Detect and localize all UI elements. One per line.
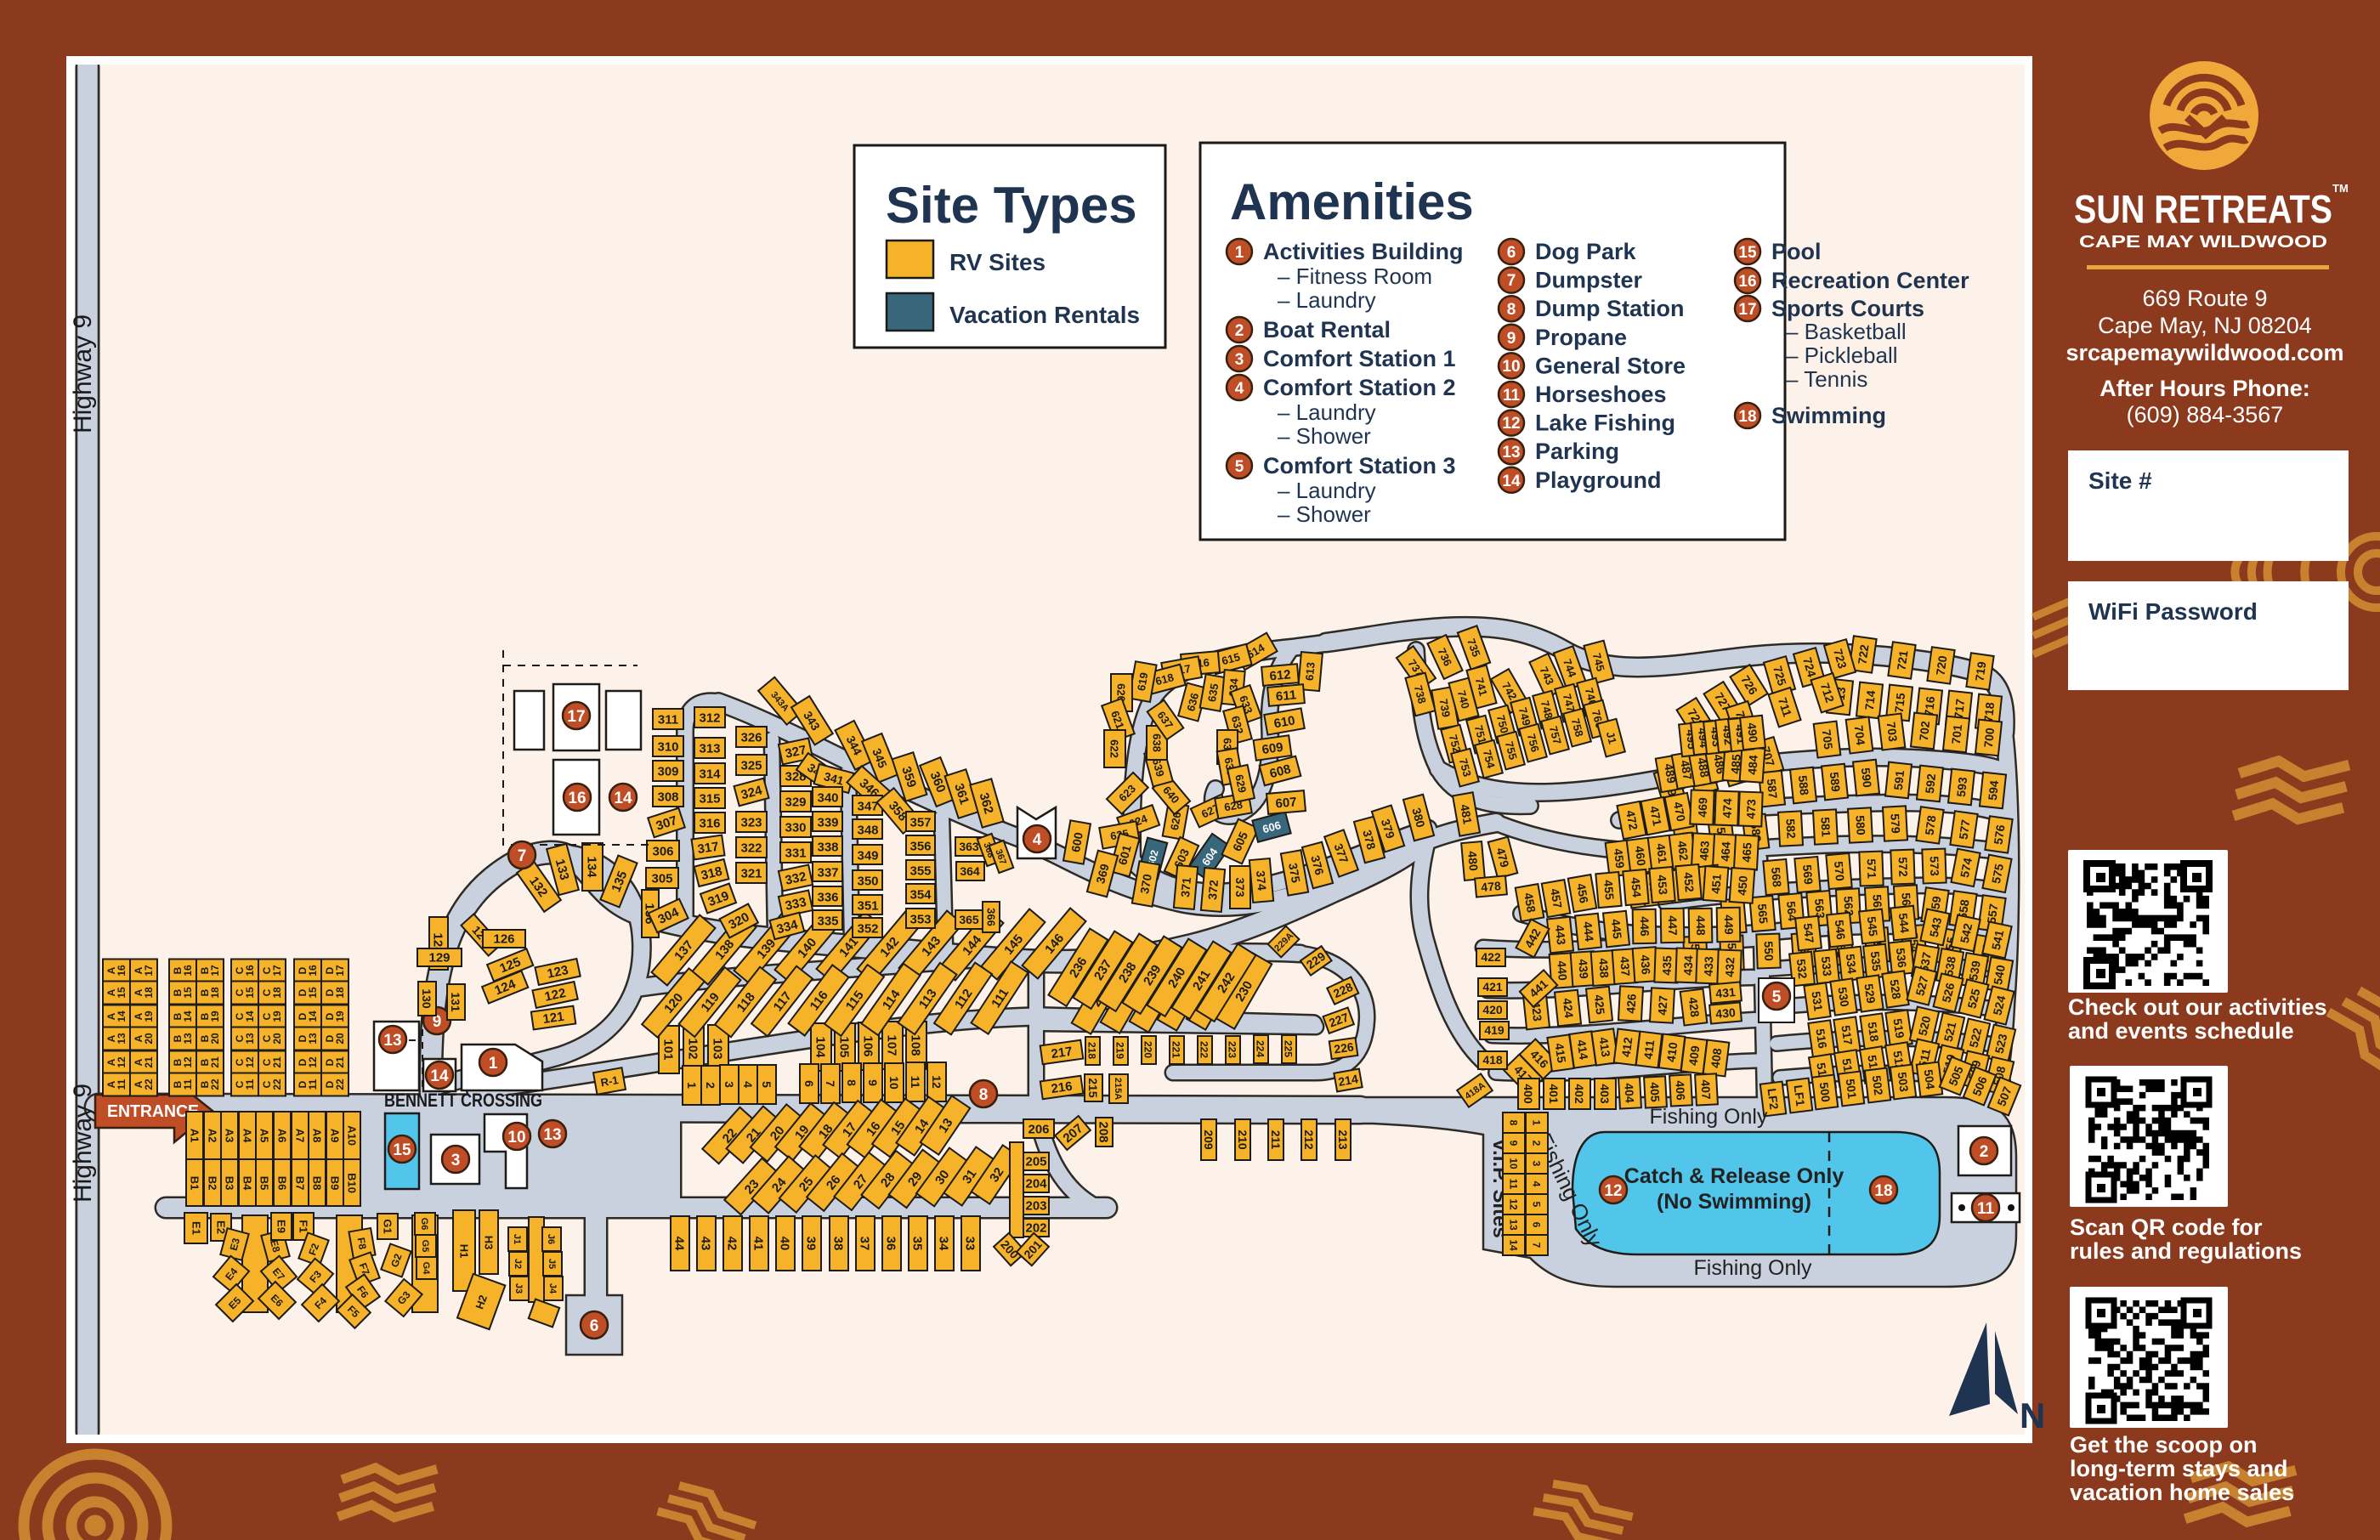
svg-text:572: 572 <box>1896 857 1911 877</box>
svg-text:B1: B1 <box>188 1176 201 1191</box>
svg-text:11: 11 <box>182 1079 194 1090</box>
svg-text:306: 306 <box>652 844 673 858</box>
svg-text:314: 314 <box>699 767 721 781</box>
svg-text:427: 427 <box>1655 995 1669 1016</box>
svg-text:204: 204 <box>1025 1176 1047 1191</box>
svg-text:365: 365 <box>959 913 979 926</box>
svg-text:224: 224 <box>1255 1040 1266 1057</box>
svg-text:Highway 9: Highway 9 <box>69 314 97 433</box>
svg-text:1: 1 <box>1531 1120 1543 1126</box>
svg-text:406: 406 <box>1673 1080 1687 1101</box>
svg-text:105: 105 <box>837 1036 852 1057</box>
svg-text:504: 504 <box>1922 1068 1938 1090</box>
svg-text:577: 577 <box>1956 818 1972 841</box>
svg-text:12: 12 <box>307 1056 319 1068</box>
svg-text:323: 323 <box>740 815 762 829</box>
svg-text:22: 22 <box>334 1079 346 1090</box>
svg-text:18: 18 <box>1738 408 1756 426</box>
svg-text:19: 19 <box>334 1011 346 1022</box>
svg-text:500: 500 <box>1817 1081 1833 1102</box>
svg-text:1: 1 <box>489 1055 498 1073</box>
svg-text:A7: A7 <box>293 1129 306 1143</box>
svg-text:409: 409 <box>1686 1045 1703 1066</box>
svg-text:15: 15 <box>1738 244 1757 262</box>
svg-text:H3: H3 <box>482 1236 495 1250</box>
svg-text:Dog Park: Dog Park <box>1535 239 1637 264</box>
svg-text:453: 453 <box>1655 875 1670 896</box>
svg-text:221: 221 <box>1170 1041 1182 1058</box>
svg-text:Catch & Release Only: Catch & Release Only <box>1624 1164 1844 1188</box>
svg-text:18: 18 <box>1874 1182 1892 1200</box>
svg-text:22: 22 <box>271 1079 283 1090</box>
svg-text:4: 4 <box>741 1081 755 1088</box>
svg-text:5: 5 <box>1531 1202 1543 1208</box>
svg-text:414: 414 <box>1574 1039 1590 1061</box>
svg-text:A6: A6 <box>275 1129 288 1143</box>
svg-text:15: 15 <box>307 987 319 999</box>
svg-text:440: 440 <box>1555 960 1570 982</box>
svg-text:592: 592 <box>1923 773 1938 794</box>
svg-text:Boat Rental: Boat Rental <box>1263 317 1391 343</box>
svg-text:B2: B2 <box>206 1176 218 1191</box>
svg-text:Comfort Station 2: Comfort Station 2 <box>1263 375 1456 400</box>
svg-text:347: 347 <box>857 799 878 813</box>
svg-text:10: 10 <box>1502 358 1520 376</box>
svg-text:722: 722 <box>1855 643 1871 665</box>
svg-text:– Laundry: – Laundry <box>1278 287 1376 313</box>
svg-text:421: 421 <box>1482 980 1503 994</box>
svg-text:126: 126 <box>493 931 514 946</box>
svg-text:310: 310 <box>657 739 678 754</box>
svg-text:528: 528 <box>1887 978 1903 1000</box>
svg-text:503: 503 <box>1895 1071 1912 1092</box>
svg-text:571: 571 <box>1865 858 1879 879</box>
svg-text:462: 462 <box>1675 840 1691 861</box>
svg-text:21: 21 <box>334 1056 346 1068</box>
svg-text:Fishing Only: Fishing Only <box>1650 1105 1768 1129</box>
svg-text:437: 437 <box>1618 956 1633 977</box>
svg-text:366: 366 <box>984 908 997 926</box>
svg-text:438: 438 <box>1596 958 1612 979</box>
svg-text:18: 18 <box>143 987 155 999</box>
svg-text:A4: A4 <box>241 1129 253 1143</box>
svg-text:E9: E9 <box>275 1220 287 1233</box>
svg-text:569: 569 <box>1800 864 1816 886</box>
svg-text:518: 518 <box>1865 1021 1881 1043</box>
svg-text:long-term stays and: long-term stays and <box>2070 1456 2288 1481</box>
svg-text:J4: J4 <box>547 1283 558 1294</box>
svg-text:445: 445 <box>1609 919 1624 940</box>
svg-text:3: 3 <box>1531 1161 1543 1167</box>
svg-text:2: 2 <box>1235 322 1244 340</box>
svg-text:Amenities: Amenities <box>1230 173 1474 230</box>
svg-text:(609) 884-3567: (609) 884-3567 <box>2127 402 2284 427</box>
svg-text:Highway 9: Highway 9 <box>69 1084 97 1203</box>
svg-text:E1: E1 <box>190 1221 202 1235</box>
svg-text:A5: A5 <box>258 1129 270 1143</box>
svg-text:B7: B7 <box>293 1176 306 1191</box>
svg-text:J1: J1 <box>512 1234 522 1244</box>
svg-text:557: 557 <box>1984 903 2000 925</box>
svg-text:454: 454 <box>1629 877 1644 898</box>
svg-text:7: 7 <box>1531 1243 1543 1248</box>
svg-text:B10: B10 <box>345 1173 358 1193</box>
svg-text:2: 2 <box>704 1082 717 1089</box>
svg-text:14: 14 <box>116 1011 127 1022</box>
svg-text:Activities Building: Activities Building <box>1263 239 1464 264</box>
svg-text:5: 5 <box>1772 988 1782 1006</box>
svg-text:16: 16 <box>568 790 586 807</box>
svg-text:34: 34 <box>937 1237 951 1251</box>
svg-text:G6: G6 <box>419 1218 429 1231</box>
svg-text:131: 131 <box>449 992 462 1012</box>
svg-text:12: 12 <box>930 1075 943 1089</box>
svg-text:622: 622 <box>1108 739 1120 758</box>
svg-text:594: 594 <box>1986 779 2001 801</box>
svg-text:338: 338 <box>817 840 838 854</box>
svg-text:611: 611 <box>1275 688 1297 704</box>
svg-text:16: 16 <box>116 965 127 977</box>
svg-text:14: 14 <box>307 1011 319 1022</box>
svg-text:565: 565 <box>1755 903 1771 925</box>
svg-text:587: 587 <box>1765 778 1780 800</box>
svg-text:355: 355 <box>909 863 931 878</box>
svg-text:39: 39 <box>804 1237 819 1251</box>
svg-text:6: 6 <box>802 1080 816 1087</box>
svg-text:570: 570 <box>1832 861 1847 882</box>
svg-text:E2: E2 <box>214 1220 227 1234</box>
svg-text:15: 15 <box>116 987 127 999</box>
svg-text:2: 2 <box>1531 1141 1543 1147</box>
svg-text:435: 435 <box>1660 955 1674 976</box>
svg-text:– Pickleball: – Pickleball <box>1786 343 1898 368</box>
svg-text:38: 38 <box>831 1237 846 1251</box>
svg-text:721: 721 <box>1894 649 1910 671</box>
svg-text:206: 206 <box>1028 1122 1049 1136</box>
svg-text:579: 579 <box>1888 813 1902 834</box>
svg-text:222: 222 <box>1198 1041 1210 1058</box>
svg-text:6: 6 <box>1531 1222 1543 1228</box>
svg-text:20: 20 <box>143 1033 155 1045</box>
svg-text:7: 7 <box>1507 272 1516 290</box>
svg-text:428: 428 <box>1686 996 1703 1017</box>
svg-text:339: 339 <box>817 815 838 829</box>
svg-text:439: 439 <box>1576 959 1591 980</box>
svg-text:134: 134 <box>585 856 599 878</box>
svg-text:205: 205 <box>1025 1154 1046 1169</box>
svg-text:TM: TM <box>2332 182 2349 195</box>
svg-text:G4: G4 <box>421 1262 431 1276</box>
svg-text:455: 455 <box>1601 880 1617 901</box>
svg-text:490: 490 <box>1745 722 1760 744</box>
svg-text:12: 12 <box>244 1056 256 1068</box>
svg-text:4: 4 <box>1235 380 1244 398</box>
svg-text:Propane: Propane <box>1535 325 1627 350</box>
svg-text:13: 13 <box>543 1126 561 1144</box>
svg-text:315: 315 <box>699 791 720 806</box>
svg-text:After Hours Phone:: After Hours Phone: <box>2099 376 2310 401</box>
svg-text:vacation home sales: vacation home sales <box>2070 1480 2294 1505</box>
svg-text:B4: B4 <box>241 1176 253 1191</box>
svg-text:464: 464 <box>1718 841 1732 862</box>
svg-text:203: 203 <box>1025 1198 1046 1213</box>
svg-text:546: 546 <box>1833 920 1848 941</box>
svg-text:373: 373 <box>1233 877 1247 897</box>
svg-text:351: 351 <box>857 898 878 913</box>
svg-text:104: 104 <box>813 1036 828 1058</box>
svg-text:16: 16 <box>307 965 319 977</box>
svg-text:322: 322 <box>740 841 762 855</box>
svg-text:582: 582 <box>1783 818 1798 839</box>
svg-text:432: 432 <box>1723 957 1737 977</box>
svg-text:403: 403 <box>1598 1084 1612 1104</box>
svg-text:1: 1 <box>1235 244 1244 262</box>
svg-text:700: 700 <box>1981 727 1997 748</box>
svg-text:425: 425 <box>1592 994 1607 1016</box>
svg-text:612: 612 <box>1269 667 1291 683</box>
svg-text:720: 720 <box>1933 654 1949 677</box>
svg-text:590: 590 <box>1859 767 1874 789</box>
svg-text:215A: 215A <box>1113 1078 1123 1100</box>
svg-text:326: 326 <box>740 730 762 745</box>
svg-text:14: 14 <box>1508 1239 1520 1251</box>
svg-text:14: 14 <box>182 1011 194 1022</box>
svg-text:Vacation Rentals: Vacation Rentals <box>949 302 1140 328</box>
svg-text:308: 308 <box>657 790 678 804</box>
svg-text:516: 516 <box>1813 1028 1829 1050</box>
svg-text:313: 313 <box>699 741 720 756</box>
svg-text:12: 12 <box>182 1056 194 1068</box>
svg-text:Playground: Playground <box>1535 467 1662 493</box>
svg-text:431: 431 <box>1715 985 1737 1000</box>
svg-text:469: 469 <box>1696 797 1710 818</box>
svg-text:450: 450 <box>1735 875 1750 897</box>
svg-text:4: 4 <box>1531 1181 1543 1187</box>
svg-text:226: 226 <box>1333 1039 1355 1056</box>
svg-text:A8: A8 <box>310 1129 323 1143</box>
svg-text:Recreation Center: Recreation Center <box>1771 268 1969 293</box>
svg-text:43: 43 <box>699 1237 713 1251</box>
svg-text:580: 580 <box>1853 815 1867 835</box>
svg-text:ENTRANCE: ENTRANCE <box>107 1102 199 1121</box>
svg-text:Get the scoop on: Get the scoop on <box>2070 1432 2258 1458</box>
svg-text:17: 17 <box>334 965 346 977</box>
svg-text:N: N <box>2020 1396 2045 1435</box>
svg-text:rules and regulations: rules and regulations <box>2070 1238 2302 1264</box>
svg-text:14: 14 <box>1502 473 1521 490</box>
svg-text:13: 13 <box>307 1033 319 1045</box>
svg-text:329: 329 <box>785 795 806 809</box>
svg-text:17: 17 <box>1738 301 1756 319</box>
svg-text:– Shower: – Shower <box>1278 501 1371 527</box>
svg-text:348: 348 <box>857 823 878 837</box>
svg-text:H1: H1 <box>457 1244 470 1259</box>
svg-text:CAPE MAY WILDWOOD: CAPE MAY WILDWOOD <box>2079 233 2327 252</box>
svg-text:444: 444 <box>1581 921 1596 943</box>
svg-text:335: 335 <box>817 914 838 928</box>
svg-text:103: 103 <box>711 1038 725 1059</box>
svg-text:19: 19 <box>143 1011 155 1022</box>
svg-text:B6: B6 <box>275 1176 288 1191</box>
svg-text:18: 18 <box>271 987 283 999</box>
svg-text:412: 412 <box>1619 1036 1635 1057</box>
svg-text:701: 701 <box>1949 723 1964 745</box>
svg-text:420: 420 <box>1482 1003 1503 1016</box>
svg-text:218: 218 <box>1086 1042 1098 1059</box>
svg-text:356: 356 <box>909 839 931 853</box>
svg-text:– Laundry: – Laundry <box>1278 478 1376 503</box>
svg-text:F1: F1 <box>297 1220 309 1232</box>
svg-text:418: 418 <box>1482 1053 1503 1067</box>
svg-text:– Fitness Room: – Fitness Room <box>1278 263 1432 289</box>
svg-text:6: 6 <box>590 1317 599 1335</box>
svg-text:400: 400 <box>1521 1084 1535 1104</box>
svg-text:A1: A1 <box>188 1129 201 1143</box>
svg-text:3: 3 <box>451 1152 461 1169</box>
svg-text:321: 321 <box>740 866 762 880</box>
svg-text:22: 22 <box>209 1079 221 1090</box>
svg-text:609: 609 <box>1261 740 1284 757</box>
svg-text:44: 44 <box>672 1237 687 1251</box>
svg-text:372: 372 <box>1205 879 1221 900</box>
svg-text:107: 107 <box>885 1034 899 1056</box>
svg-text:337: 337 <box>817 865 838 880</box>
svg-text:363: 363 <box>959 840 979 853</box>
svg-text:21: 21 <box>143 1056 155 1068</box>
svg-text:10: 10 <box>1508 1158 1520 1169</box>
svg-text:426: 426 <box>1623 994 1638 1014</box>
svg-text:588: 588 <box>1796 775 1811 796</box>
svg-text:17: 17 <box>567 708 585 726</box>
svg-text:422: 422 <box>1481 950 1501 964</box>
svg-text:16: 16 <box>1738 273 1756 291</box>
svg-text:6: 6 <box>1507 244 1516 262</box>
svg-text:461: 461 <box>1654 842 1670 863</box>
svg-text:13: 13 <box>1508 1219 1520 1231</box>
svg-text:217: 217 <box>1051 1045 1074 1062</box>
svg-text:340: 340 <box>817 790 838 805</box>
svg-text:202: 202 <box>1025 1220 1046 1235</box>
svg-text:473: 473 <box>1744 799 1759 819</box>
svg-text:11: 11 <box>909 1076 922 1089</box>
svg-text:401: 401 <box>1547 1084 1561 1104</box>
svg-text:11: 11 <box>1508 1179 1520 1190</box>
svg-text:350: 350 <box>857 874 878 888</box>
svg-text:208: 208 <box>1096 1121 1111 1142</box>
svg-text:F8: F8 <box>355 1237 369 1251</box>
svg-text:534: 534 <box>1844 954 1859 975</box>
svg-text:and events schedule: and events schedule <box>2068 1018 2294 1044</box>
svg-text:411: 411 <box>1641 1039 1657 1061</box>
svg-text:8: 8 <box>979 1086 989 1104</box>
svg-text:364: 364 <box>960 864 980 878</box>
svg-text:Scan QR code for: Scan QR code for <box>2070 1214 2263 1240</box>
svg-text:40: 40 <box>778 1237 792 1251</box>
svg-text:669 Route 9: 669 Route 9 <box>2142 286 2267 311</box>
svg-text:Check out our activities: Check out our activities <box>2068 994 2327 1020</box>
svg-text:A10: A10 <box>345 1125 358 1146</box>
svg-text:Site #: Site # <box>2088 467 2152 494</box>
svg-text:702: 702 <box>1917 720 1932 741</box>
svg-text:130: 130 <box>420 988 433 1009</box>
svg-text:215: 215 <box>1086 1078 1100 1098</box>
svg-text:407: 407 <box>1698 1079 1713 1100</box>
svg-text:15: 15 <box>393 1141 411 1159</box>
svg-text:18: 18 <box>209 987 221 999</box>
svg-text:129: 129 <box>428 950 450 965</box>
svg-text:121: 121 <box>542 1010 565 1027</box>
svg-text:529: 529 <box>1861 982 1878 1005</box>
svg-text:349: 349 <box>857 848 878 863</box>
svg-text:581: 581 <box>1818 817 1833 837</box>
svg-text:480: 480 <box>1465 851 1481 872</box>
svg-text:20: 20 <box>334 1033 346 1045</box>
svg-text:703: 703 <box>1884 721 1901 742</box>
svg-text:13: 13 <box>383 1032 401 1050</box>
svg-text:LF1: LF1 <box>1792 1084 1808 1107</box>
svg-text:16: 16 <box>244 965 256 977</box>
svg-text:613: 613 <box>1303 662 1317 682</box>
svg-text:225: 225 <box>1283 1040 1295 1057</box>
svg-text:719: 719 <box>1972 660 1988 682</box>
svg-text:Site Types: Site Types <box>886 177 1137 234</box>
svg-text:8: 8 <box>1508 1120 1520 1126</box>
svg-text:446: 446 <box>1638 916 1652 937</box>
svg-text:108: 108 <box>909 1034 923 1056</box>
svg-text:36: 36 <box>884 1237 898 1251</box>
svg-text:101: 101 <box>661 1039 676 1060</box>
svg-text:220: 220 <box>1142 1041 1154 1058</box>
svg-text:12: 12 <box>1604 1182 1622 1200</box>
svg-text:531: 531 <box>1809 990 1825 1012</box>
svg-text:B3: B3 <box>223 1176 235 1191</box>
svg-text:Horseshoes: Horseshoes <box>1535 382 1667 407</box>
svg-text:419: 419 <box>1484 1023 1504 1037</box>
svg-text:– Basketball: – Basketball <box>1786 319 1907 344</box>
svg-text:(No Swimming): (No Swimming) <box>1657 1190 1811 1214</box>
svg-text:715: 715 <box>1892 692 1907 713</box>
svg-text:484: 484 <box>1745 755 1760 776</box>
svg-text:408: 408 <box>1708 1047 1725 1068</box>
svg-text:14: 14 <box>430 1067 449 1085</box>
svg-text:19: 19 <box>271 1011 283 1022</box>
svg-text:714: 714 <box>1862 689 1878 711</box>
svg-text:474: 474 <box>1720 798 1735 818</box>
svg-text:11: 11 <box>307 1079 319 1090</box>
svg-text:J3: J3 <box>513 1283 524 1294</box>
svg-text:530: 530 <box>1835 986 1851 1008</box>
svg-text:545: 545 <box>1865 916 1880 937</box>
svg-text:– Laundry: – Laundry <box>1278 399 1376 425</box>
svg-text:10: 10 <box>507 1129 525 1147</box>
svg-text:B5: B5 <box>258 1176 270 1191</box>
svg-text:9: 9 <box>1507 330 1516 348</box>
svg-text:578: 578 <box>1922 814 1938 836</box>
svg-text:22: 22 <box>143 1079 155 1090</box>
svg-text:311: 311 <box>658 712 678 727</box>
svg-text:20: 20 <box>209 1033 221 1045</box>
svg-text:G1: G1 <box>381 1219 394 1233</box>
svg-text:19: 19 <box>209 1011 221 1022</box>
svg-text:519: 519 <box>1890 1017 1907 1039</box>
svg-text:Dump Station: Dump Station <box>1535 296 1685 321</box>
svg-text:219: 219 <box>1114 1042 1126 1059</box>
svg-text:Cape May, NJ 08204: Cape May, NJ 08204 <box>2098 313 2312 338</box>
svg-text:G5: G5 <box>420 1240 430 1253</box>
svg-text:37: 37 <box>858 1237 872 1251</box>
svg-text:210: 210 <box>1236 1130 1249 1150</box>
svg-text:11: 11 <box>1977 1200 1995 1218</box>
